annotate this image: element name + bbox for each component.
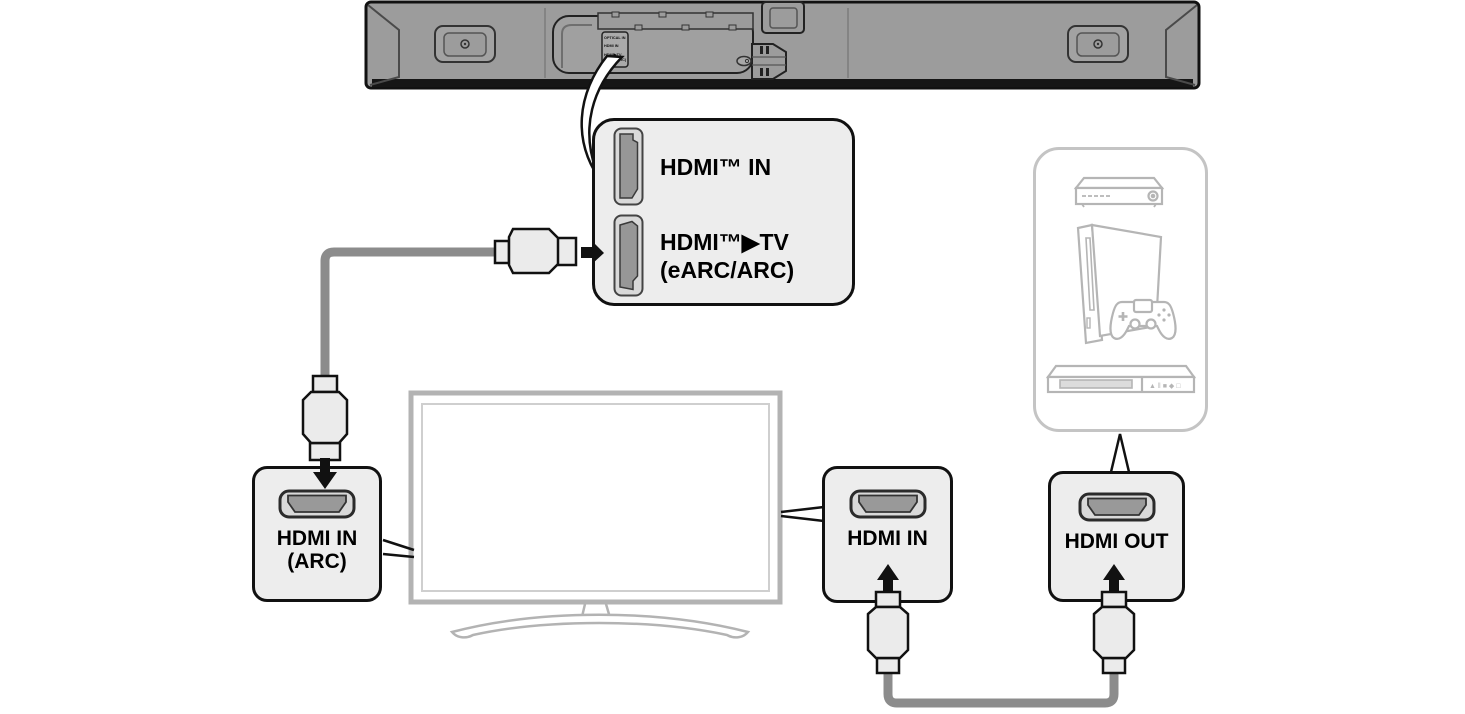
- arrow-right-icon: [581, 241, 604, 264]
- diagram-overlay: [0, 0, 1465, 714]
- arrow-up-icon: [1103, 564, 1125, 593]
- hdmi-plug-to-tv-in: [868, 592, 908, 673]
- hdmi-plug-to-device-out: [1094, 592, 1134, 673]
- hdmi-plug-to-soundbar: [495, 229, 604, 273]
- arrow-up-icon: [877, 564, 899, 593]
- hdmi-plug-to-tv-arc: [303, 376, 347, 489]
- connection-diagram-canvas: OPTICAL IN HDMI IN HDMI▶TV (eARC/ARC): [0, 0, 1465, 714]
- arrow-down-icon: [313, 458, 337, 489]
